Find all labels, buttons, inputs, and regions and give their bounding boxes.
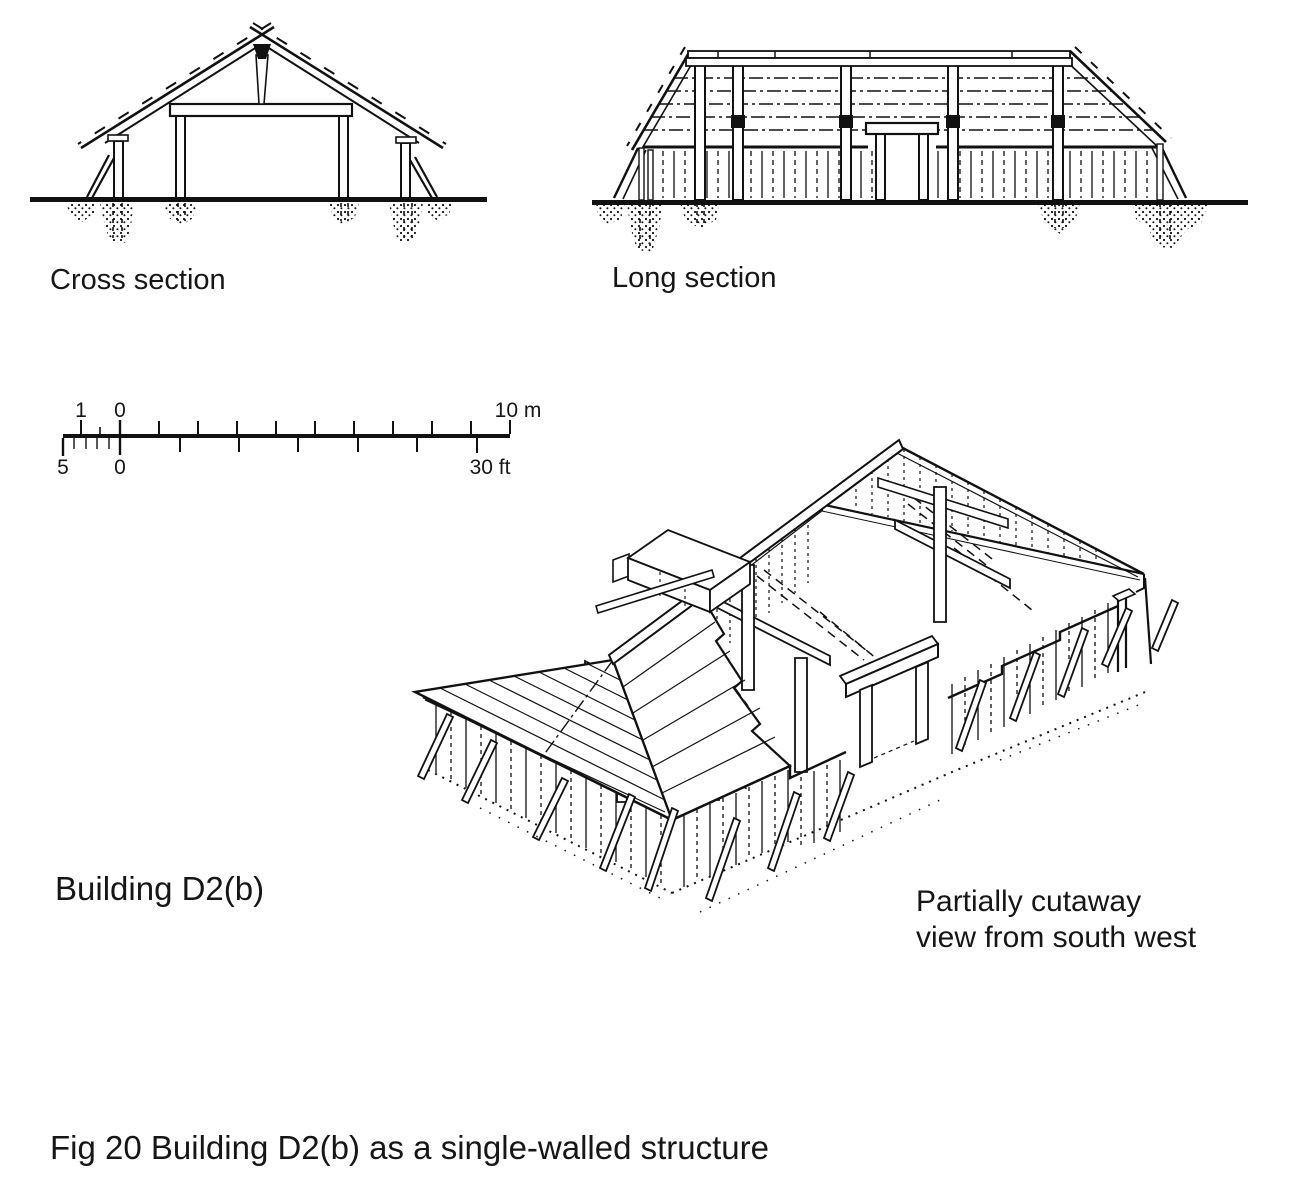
- scale-feet-five: 5: [57, 456, 69, 479]
- isometric-view-label-line2: view from south west: [916, 920, 1196, 956]
- door-lintel: [866, 123, 938, 134]
- hip-slope: [632, 51, 690, 150]
- buried-posts: [113, 203, 412, 238]
- main-post: [948, 58, 958, 200]
- eave-post: [1157, 144, 1163, 200]
- wall-plate: [108, 135, 128, 141]
- cross-section-drawing: [0, 0, 540, 270]
- wall-post: [114, 141, 123, 200]
- main-post: [695, 58, 705, 200]
- main-post: [841, 58, 851, 200]
- post-joint: [946, 115, 960, 128]
- long-section-label: Long section: [612, 262, 776, 295]
- scale-metre-zero: 0: [114, 399, 126, 422]
- raking-brace: [768, 792, 800, 871]
- eave-post: [639, 148, 644, 200]
- ne-corner-post: [1145, 578, 1151, 664]
- door-jamb: [919, 134, 928, 200]
- raking-brace: [956, 680, 986, 751]
- posthole: [389, 203, 423, 242]
- isometric-view-label-line1: Partially cutaway: [916, 884, 1196, 920]
- door-sill: [874, 741, 914, 758]
- posthole: [596, 203, 625, 224]
- posthole: [425, 203, 453, 221]
- long-section-drawing: [560, 0, 1300, 280]
- figure-caption: Fig 20 Building D2(b) as a single-walled…: [50, 1129, 769, 1167]
- eaves-brace: [410, 157, 437, 198]
- eave-post: [648, 150, 653, 200]
- posthole: [627, 203, 663, 252]
- door-jamb: [876, 134, 885, 200]
- eaves-brace: [87, 155, 114, 198]
- post-joint: [839, 115, 853, 128]
- post-joint: [731, 115, 745, 128]
- scale-metre-max: 10 m: [495, 399, 542, 422]
- ground-line: [30, 197, 487, 202]
- roof-shingles: [253, 23, 446, 144]
- aisle-post: [176, 116, 185, 200]
- posthole: [680, 203, 720, 229]
- door-jamb: [916, 662, 928, 744]
- isometric-view-label: Partially cutaway view from south west: [916, 884, 1196, 956]
- raking-brace: [600, 794, 635, 871]
- posthole: [164, 203, 197, 226]
- door-jamb: [860, 685, 872, 767]
- tie-beam: [170, 104, 352, 116]
- raking-brace: [462, 740, 497, 803]
- south-wall-top: [948, 606, 1118, 698]
- ground-line: [592, 200, 1248, 205]
- hip-shingles: [1075, 47, 1171, 138]
- post-joint: [1051, 115, 1065, 128]
- posthole: [1038, 203, 1080, 234]
- building-name-label: Building D2(b): [55, 870, 264, 908]
- wall-post: [401, 143, 410, 200]
- posthole: [1132, 203, 1208, 248]
- main-post: [1053, 58, 1063, 200]
- scale-feet-zero: 0: [114, 456, 126, 479]
- feet-minor-ticks: [74, 438, 109, 449]
- ridge-plate: [686, 58, 1072, 66]
- interior-post: [934, 487, 946, 622]
- posthole: [66, 203, 97, 222]
- posthole: [329, 203, 359, 225]
- raking-brace: [1010, 652, 1040, 721]
- aisle-post: [339, 116, 348, 200]
- raking-brace: [824, 772, 854, 841]
- gable-rafter-inner: [893, 451, 1138, 577]
- figure-page: 1 0 10 m 5 0 30 ft: [0, 0, 1300, 1181]
- hip-shingles: [627, 47, 685, 146]
- raking-brace: [645, 808, 678, 891]
- se-corner-cap: [1113, 589, 1135, 601]
- raking-brace: [1058, 628, 1088, 697]
- hip-slope: [1070, 51, 1166, 142]
- raking-brace: [1152, 600, 1178, 651]
- posthole: [100, 203, 134, 243]
- wall-plate: [396, 137, 416, 143]
- hip-slope-inner: [1063, 58, 1158, 147]
- king-post: [256, 55, 268, 104]
- scale-metre-one: 1: [75, 399, 87, 422]
- buried-posts: [640, 203, 1170, 246]
- interior-post: [795, 658, 807, 772]
- roof-shingles: [78, 23, 271, 144]
- main-post: [733, 58, 743, 200]
- cross-section-label: Cross section: [50, 264, 226, 297]
